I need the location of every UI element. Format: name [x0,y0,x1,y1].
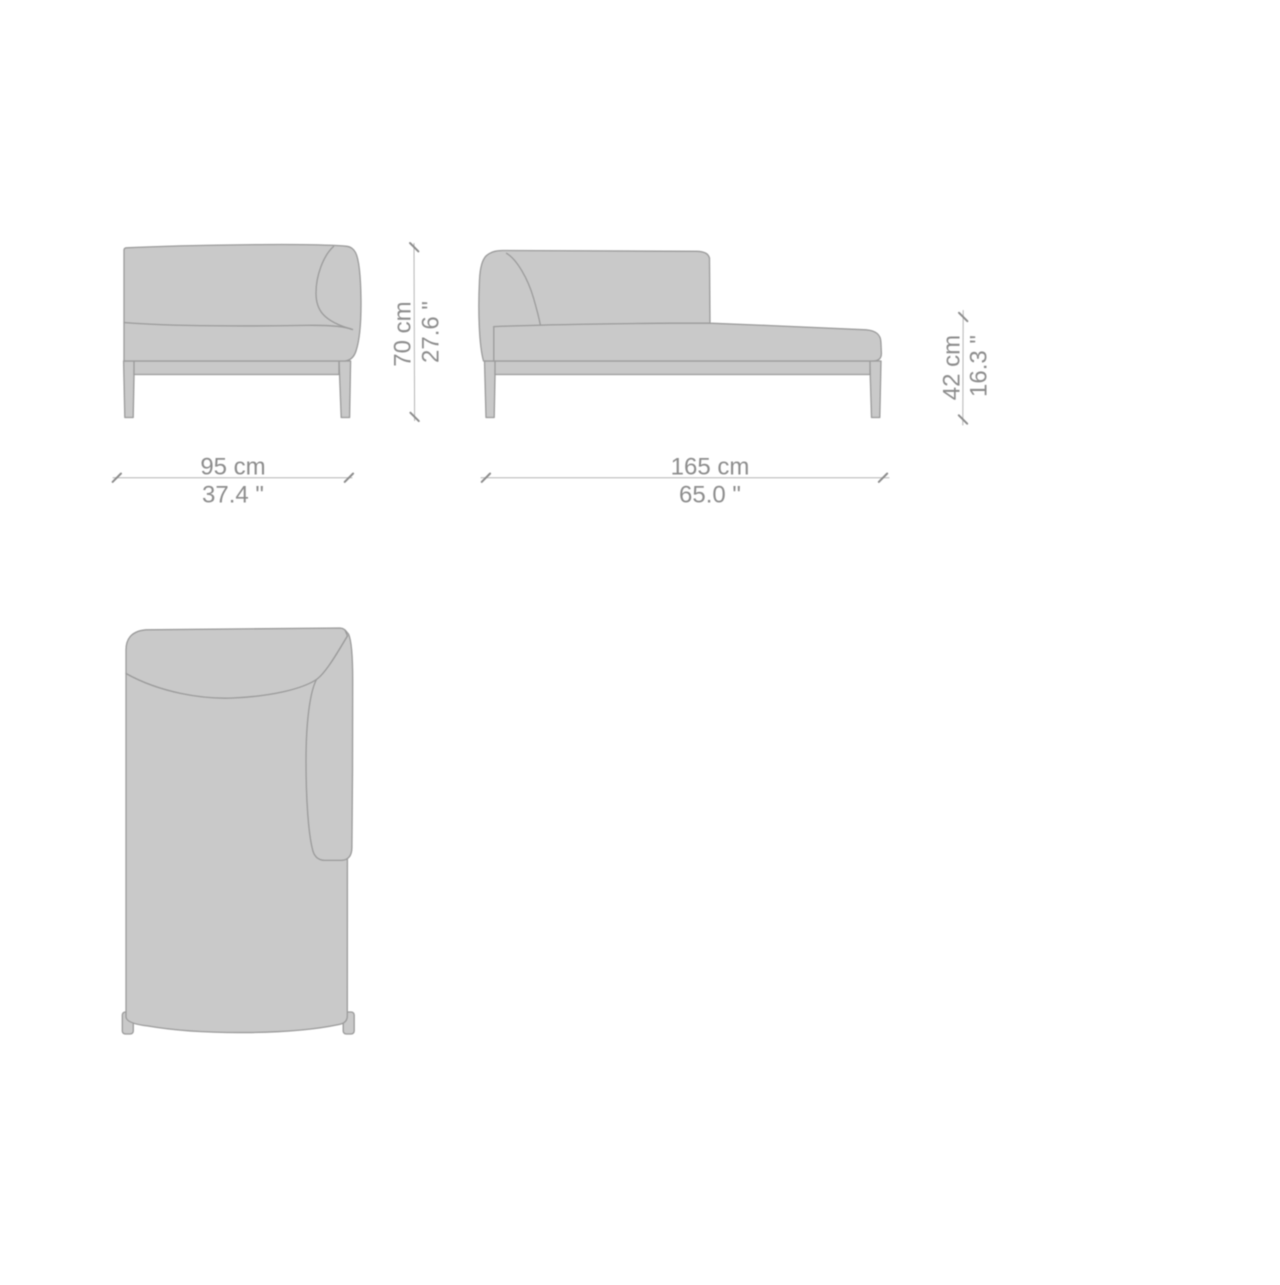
svg-text:27.6 ": 27.6 " [418,301,445,363]
svg-text:37.4 ": 37.4 " [202,482,264,509]
svg-text:42 cm: 42 cm [939,335,966,400]
svg-text:165 cm: 165 cm [671,454,750,481]
svg-text:16.3 ": 16.3 " [966,335,993,397]
svg-text:70 cm: 70 cm [390,301,417,366]
svg-text:65.0 ": 65.0 " [679,482,741,509]
svg-text:95 cm: 95 cm [200,454,265,481]
